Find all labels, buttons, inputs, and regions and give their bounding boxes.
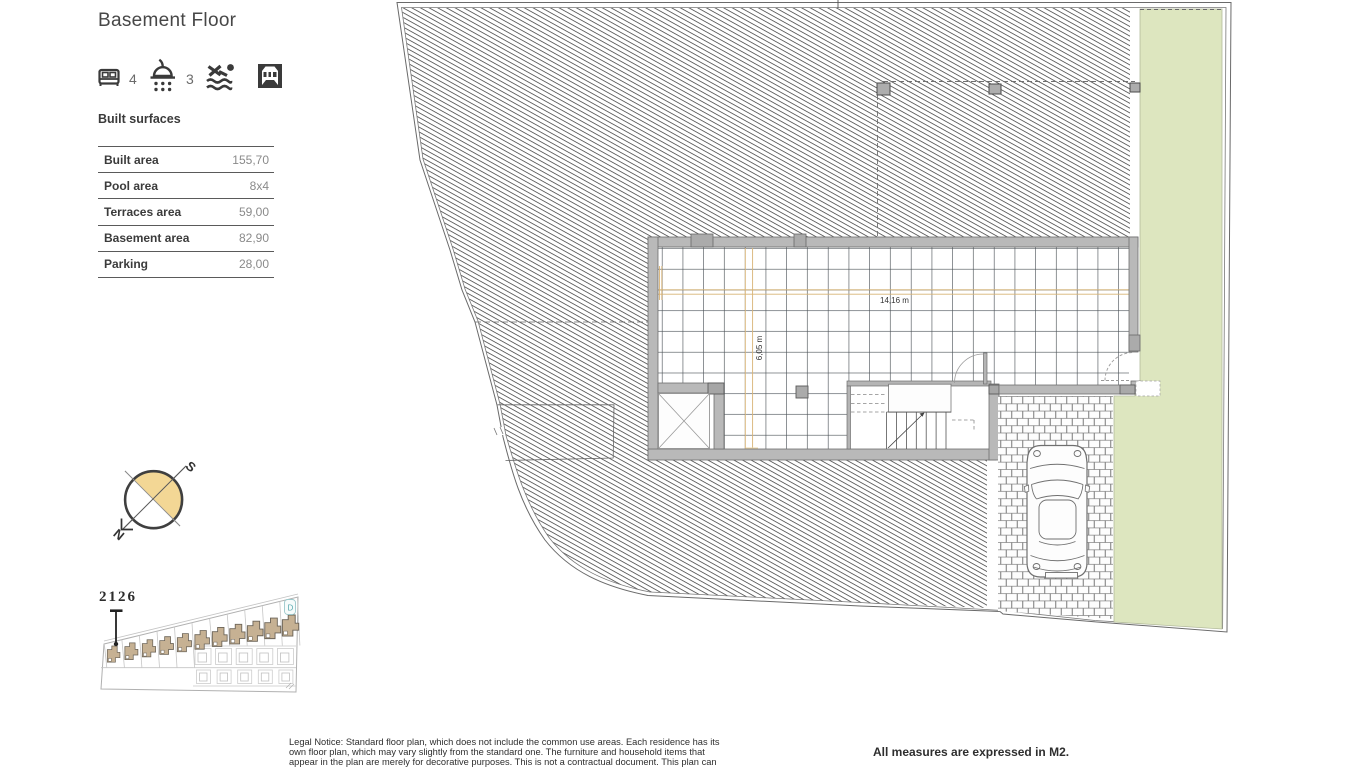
svg-text:6,05 m: 6,05 m: [755, 335, 764, 360]
svg-text:14,16 m: 14,16 m: [880, 296, 909, 305]
